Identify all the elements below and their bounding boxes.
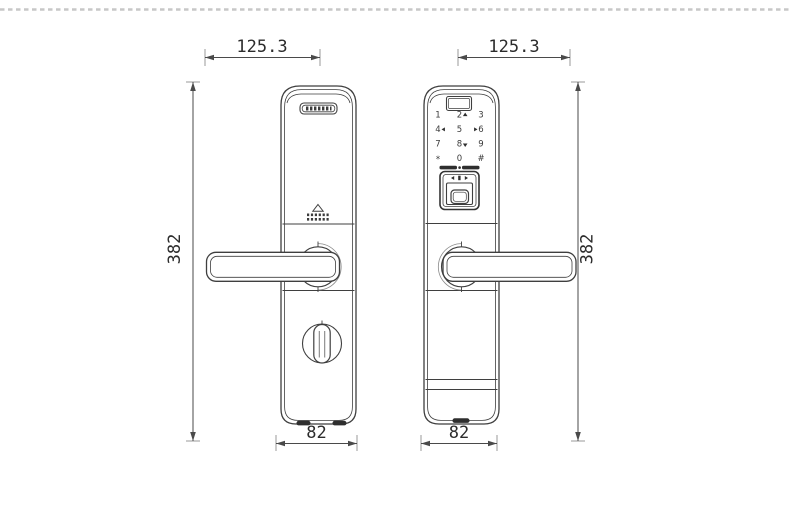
key-9: 9 bbox=[478, 140, 483, 150]
key-1: 1 bbox=[435, 111, 440, 121]
key-6: 6 bbox=[478, 125, 483, 135]
key-5: 5 bbox=[457, 125, 462, 135]
door-handle-back bbox=[207, 252, 340, 281]
bottom-width-dimension-back: 82 bbox=[276, 423, 357, 451]
key-2: 2 bbox=[457, 111, 462, 121]
height-dim-label-front: 382 bbox=[578, 234, 598, 265]
indicator-bars bbox=[440, 166, 480, 170]
height-dimension-back: 382 bbox=[165, 82, 200, 441]
back-view: 125.3 382 82 bbox=[165, 37, 357, 451]
key-7: 7 bbox=[435, 140, 440, 150]
width-dimension-front: 125.3 bbox=[458, 37, 570, 66]
front-view: 1 2 3 4 5 6 7 8 9 * 0 # bbox=[421, 37, 598, 451]
key-hash: # bbox=[477, 154, 484, 164]
width-dim-label-back: 125.3 bbox=[236, 37, 287, 57]
bottom-dim-label-back: 82 bbox=[306, 423, 326, 443]
lock-dimension-drawing: 125.3 382 82 bbox=[0, 0, 790, 528]
height-dim-label-back: 382 bbox=[165, 234, 185, 265]
bottom-dim-label-front: 82 bbox=[449, 423, 469, 443]
key-3: 3 bbox=[478, 111, 483, 121]
bottom-width-dimension-front: 82 bbox=[421, 423, 497, 451]
width-dimension-back: 125.3 bbox=[205, 37, 320, 66]
drawing-svg: 125.3 382 82 bbox=[0, 0, 790, 528]
key-8: 8 bbox=[457, 140, 462, 150]
key-4: 4 bbox=[435, 125, 440, 135]
key-0: 0 bbox=[457, 154, 462, 164]
fingerprint-scanner-icon bbox=[440, 172, 479, 210]
key-star: * bbox=[436, 155, 440, 165]
width-dim-label-front: 125.3 bbox=[488, 37, 539, 57]
door-handle-front bbox=[443, 252, 576, 281]
